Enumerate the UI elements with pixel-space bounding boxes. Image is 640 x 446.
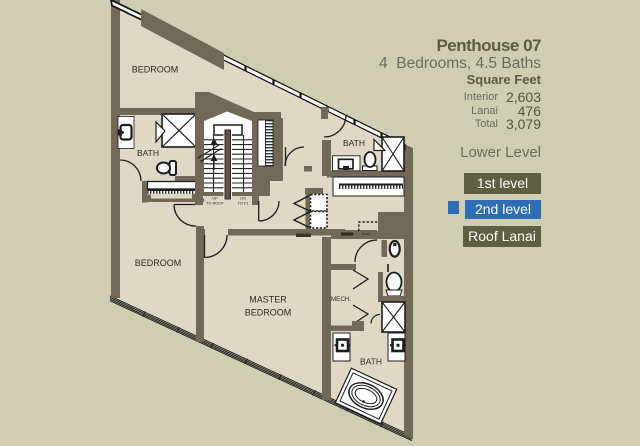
svg-text:BEDROOM: BEDROOM: [245, 308, 292, 318]
svg-text:BEDROOM: BEDROOM: [132, 65, 179, 75]
svg-text:TO ROOF: TO ROOF: [206, 201, 224, 206]
svg-text:TO F1: TO F1: [238, 201, 249, 206]
svg-text:MASTER: MASTER: [249, 295, 287, 305]
svg-text:BATH: BATH: [137, 148, 159, 158]
svg-text:BEDROOM: BEDROOM: [135, 258, 182, 268]
